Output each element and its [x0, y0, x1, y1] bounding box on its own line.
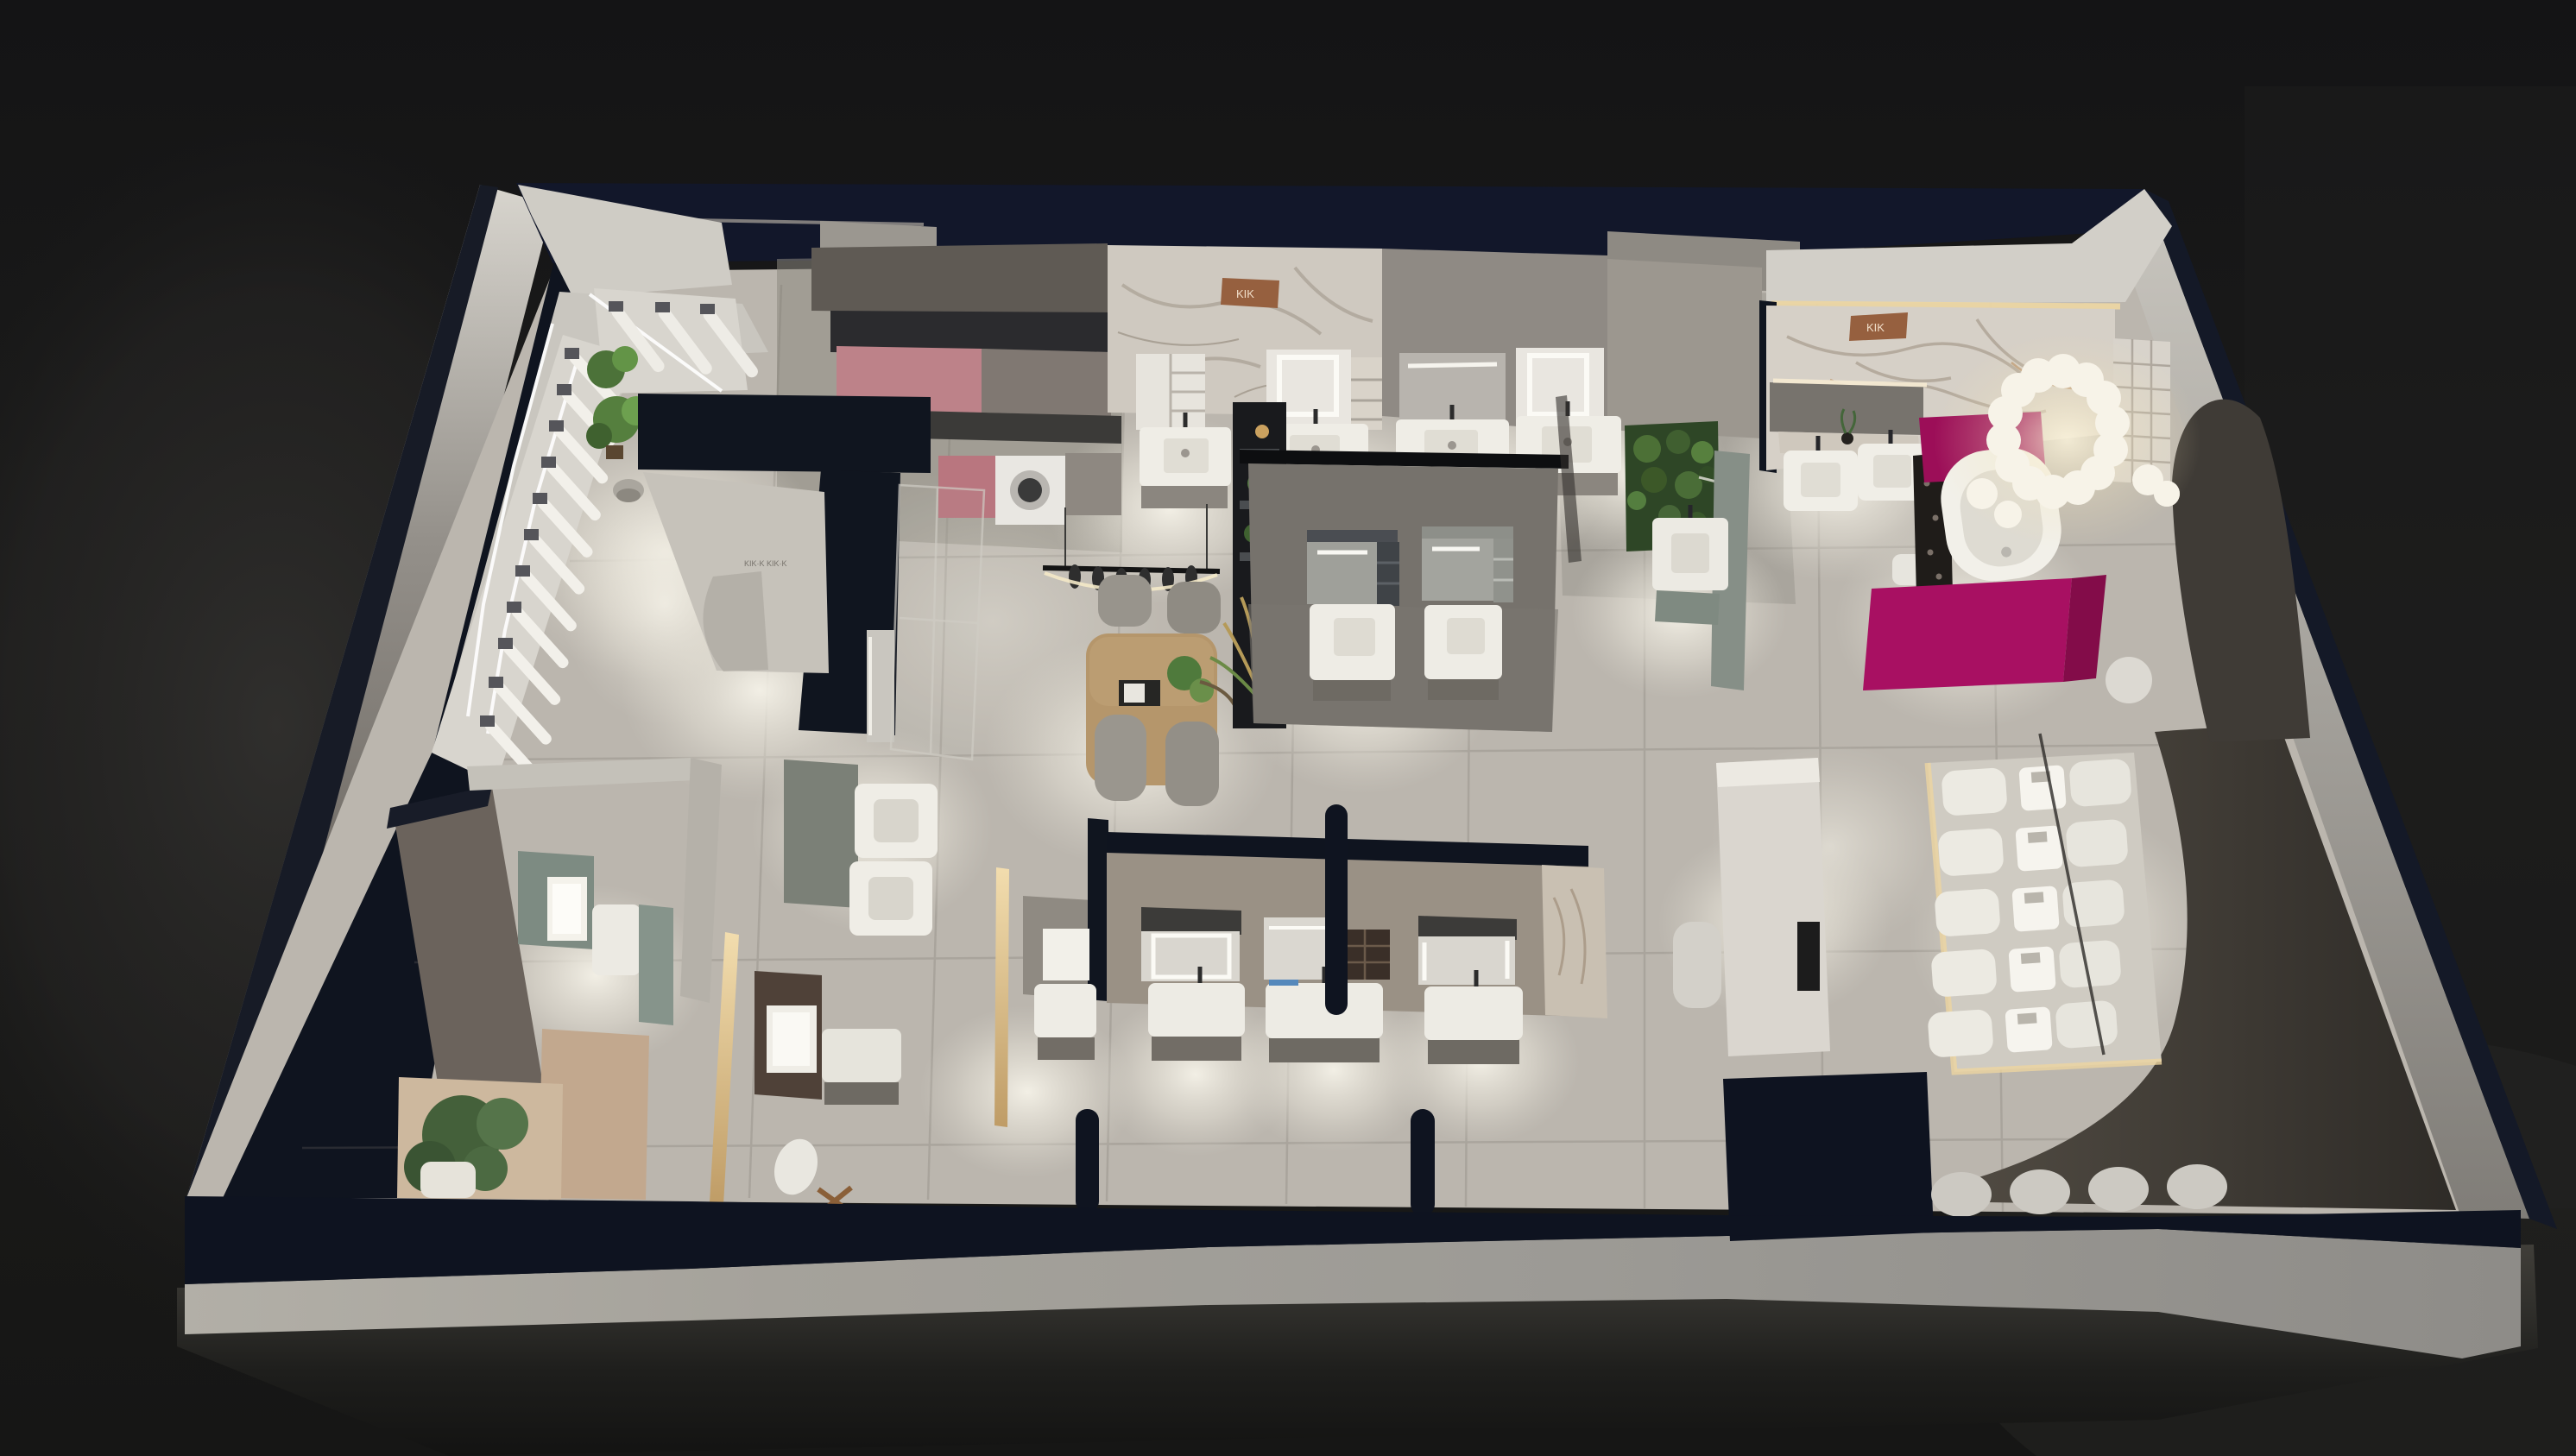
svg-text:KIK: KIK — [1236, 287, 1254, 300]
svg-text:KIK: KIK — [1866, 321, 1885, 334]
svg-text:KIK·K KIK·K: KIK·K KIK·K — [744, 559, 787, 568]
